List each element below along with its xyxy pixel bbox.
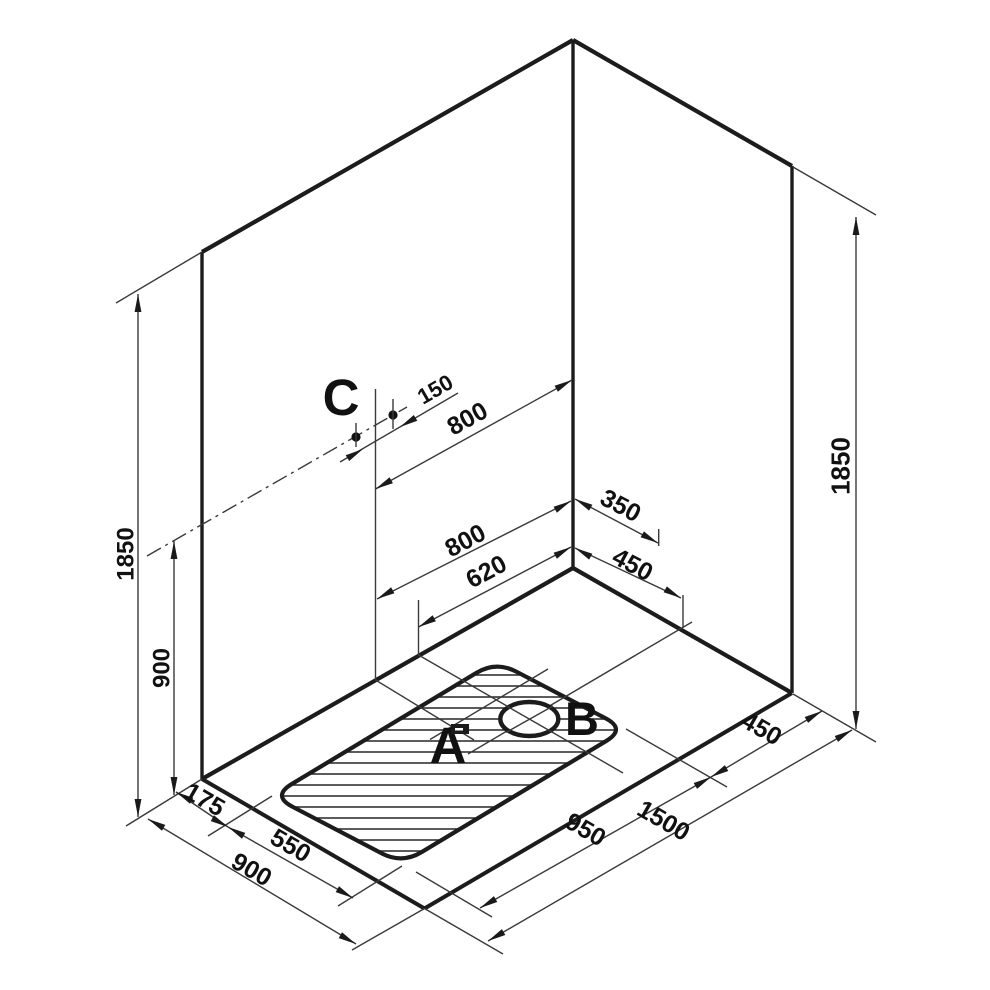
svg-text:900: 900 xyxy=(149,648,176,688)
svg-text:B: B xyxy=(565,692,599,745)
svg-text:1850: 1850 xyxy=(825,437,855,495)
svg-text:1850: 1850 xyxy=(113,527,140,580)
svg-text:C: C xyxy=(323,369,360,426)
